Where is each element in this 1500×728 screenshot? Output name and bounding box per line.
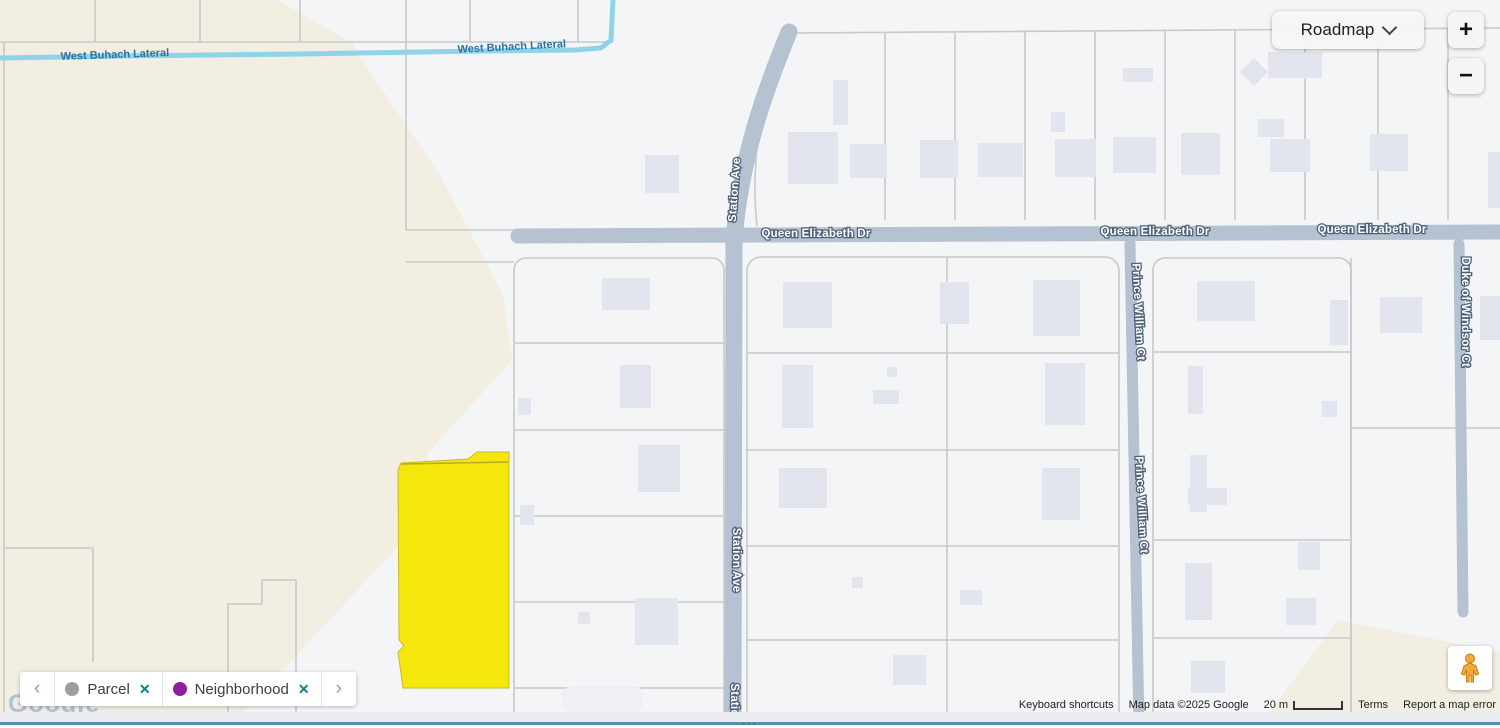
- map-attribution: Keyboard shortcuts Map data ©2025 Google…: [1019, 699, 1496, 711]
- chevron-down-icon: [1382, 20, 1398, 36]
- pegman-icon: [1459, 653, 1481, 683]
- chip-label: Neighborhood: [195, 681, 289, 698]
- bottom-panel-strip: ...: [0, 712, 1500, 728]
- water-label: West Buhach Lateral: [457, 38, 566, 56]
- scale-control: 20 m: [1264, 699, 1343, 711]
- parcel-dot-icon: [65, 682, 79, 696]
- map-svg[interactable]: West Buhach Lateral West Buhach Lateral …: [0, 0, 1500, 728]
- street-label-queen-elizabeth: Queen Elizabeth Dr: [761, 228, 870, 240]
- zoom-in-button[interactable]: +: [1448, 12, 1484, 48]
- chevron-left-icon[interactable]: ‹: [30, 673, 44, 705]
- map-canvas: West Buhach Lateral West Buhach Lateral …: [0, 0, 1500, 728]
- keyboard-shortcuts-link[interactable]: Keyboard shortcuts: [1019, 699, 1114, 711]
- chip-label: Parcel: [87, 681, 130, 698]
- street-label-station-ave: Station Ave: [730, 528, 742, 593]
- pegman-button[interactable]: [1448, 646, 1492, 690]
- chip-parcel[interactable]: Parcel ✕: [55, 672, 162, 706]
- report-map-error-link[interactable]: Report a map error: [1403, 699, 1496, 711]
- scale-bar: [1293, 701, 1343, 710]
- road-station-ave: [733, 32, 789, 728]
- street-label-queen-elizabeth: Queen Elizabeth Dr: [1317, 224, 1426, 236]
- map-data-credit: Map data ©2025 Google: [1129, 699, 1249, 711]
- panel-handle-track: ...: [0, 712, 1500, 725]
- highlighted-parcel[interactable]: [398, 452, 509, 688]
- chip-neighborhood[interactable]: Neighborhood ✕: [163, 672, 322, 706]
- close-icon[interactable]: ✕: [297, 681, 311, 698]
- land-areas: [0, 0, 1500, 728]
- zoom-out-button[interactable]: −: [1448, 58, 1484, 94]
- street-label-duke-of-windsor: Duke of Windsor Ct: [1459, 257, 1471, 367]
- neighborhood-dot-icon: [173, 682, 187, 696]
- layer-chip-bar: ‹ Parcel ✕ Neighborhood ✕ ›: [20, 672, 356, 706]
- chevron-right-icon[interactable]: ›: [332, 673, 346, 705]
- drag-handle[interactable]: ...: [742, 717, 759, 724]
- map-type-button[interactable]: Roadmap: [1272, 11, 1424, 49]
- scale-label: 20 m: [1264, 699, 1288, 711]
- buildings: [518, 52, 1500, 712]
- street-label-queen-elizabeth: Queen Elizabeth Dr: [1100, 226, 1209, 238]
- map-type-label: Roadmap: [1301, 20, 1375, 40]
- close-icon[interactable]: ✕: [138, 681, 152, 698]
- terms-link[interactable]: Terms: [1358, 699, 1388, 711]
